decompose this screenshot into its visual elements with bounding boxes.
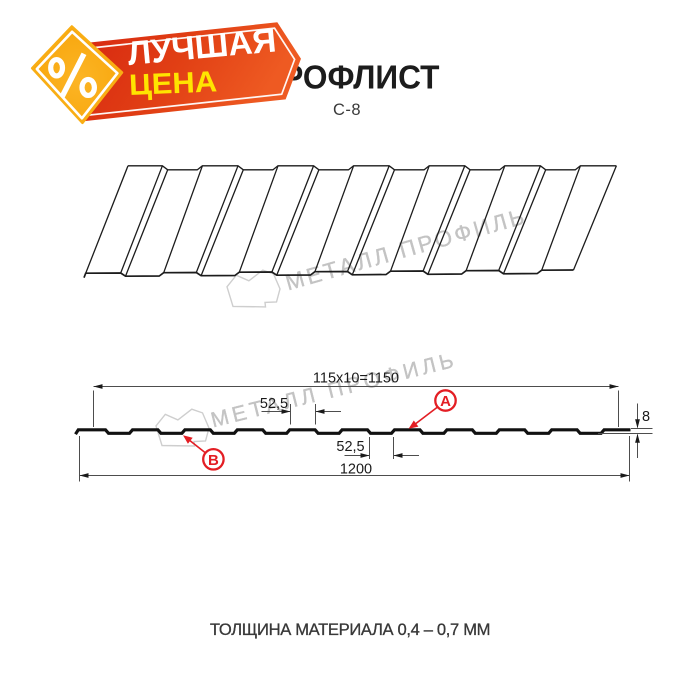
svg-text:52,5: 52,5: [260, 396, 288, 412]
svg-text:ТОЛЩИНА МАТЕРИАЛА 0,4 – 0,7 ММ: ТОЛЩИНА МАТЕРИАЛА 0,4 – 0,7 ММ: [210, 620, 490, 639]
svg-text:В: В: [208, 452, 219, 469]
svg-text:1200: 1200: [340, 461, 372, 477]
svg-text:8: 8: [642, 409, 650, 425]
svg-text:52,5: 52,5: [336, 439, 364, 455]
svg-text:ЦЕНА: ЦЕНА: [128, 65, 217, 102]
svg-text:А: А: [440, 393, 451, 410]
svg-text:115x10=1150: 115x10=1150: [313, 371, 399, 387]
svg-text:С-8: С-8: [333, 101, 361, 119]
